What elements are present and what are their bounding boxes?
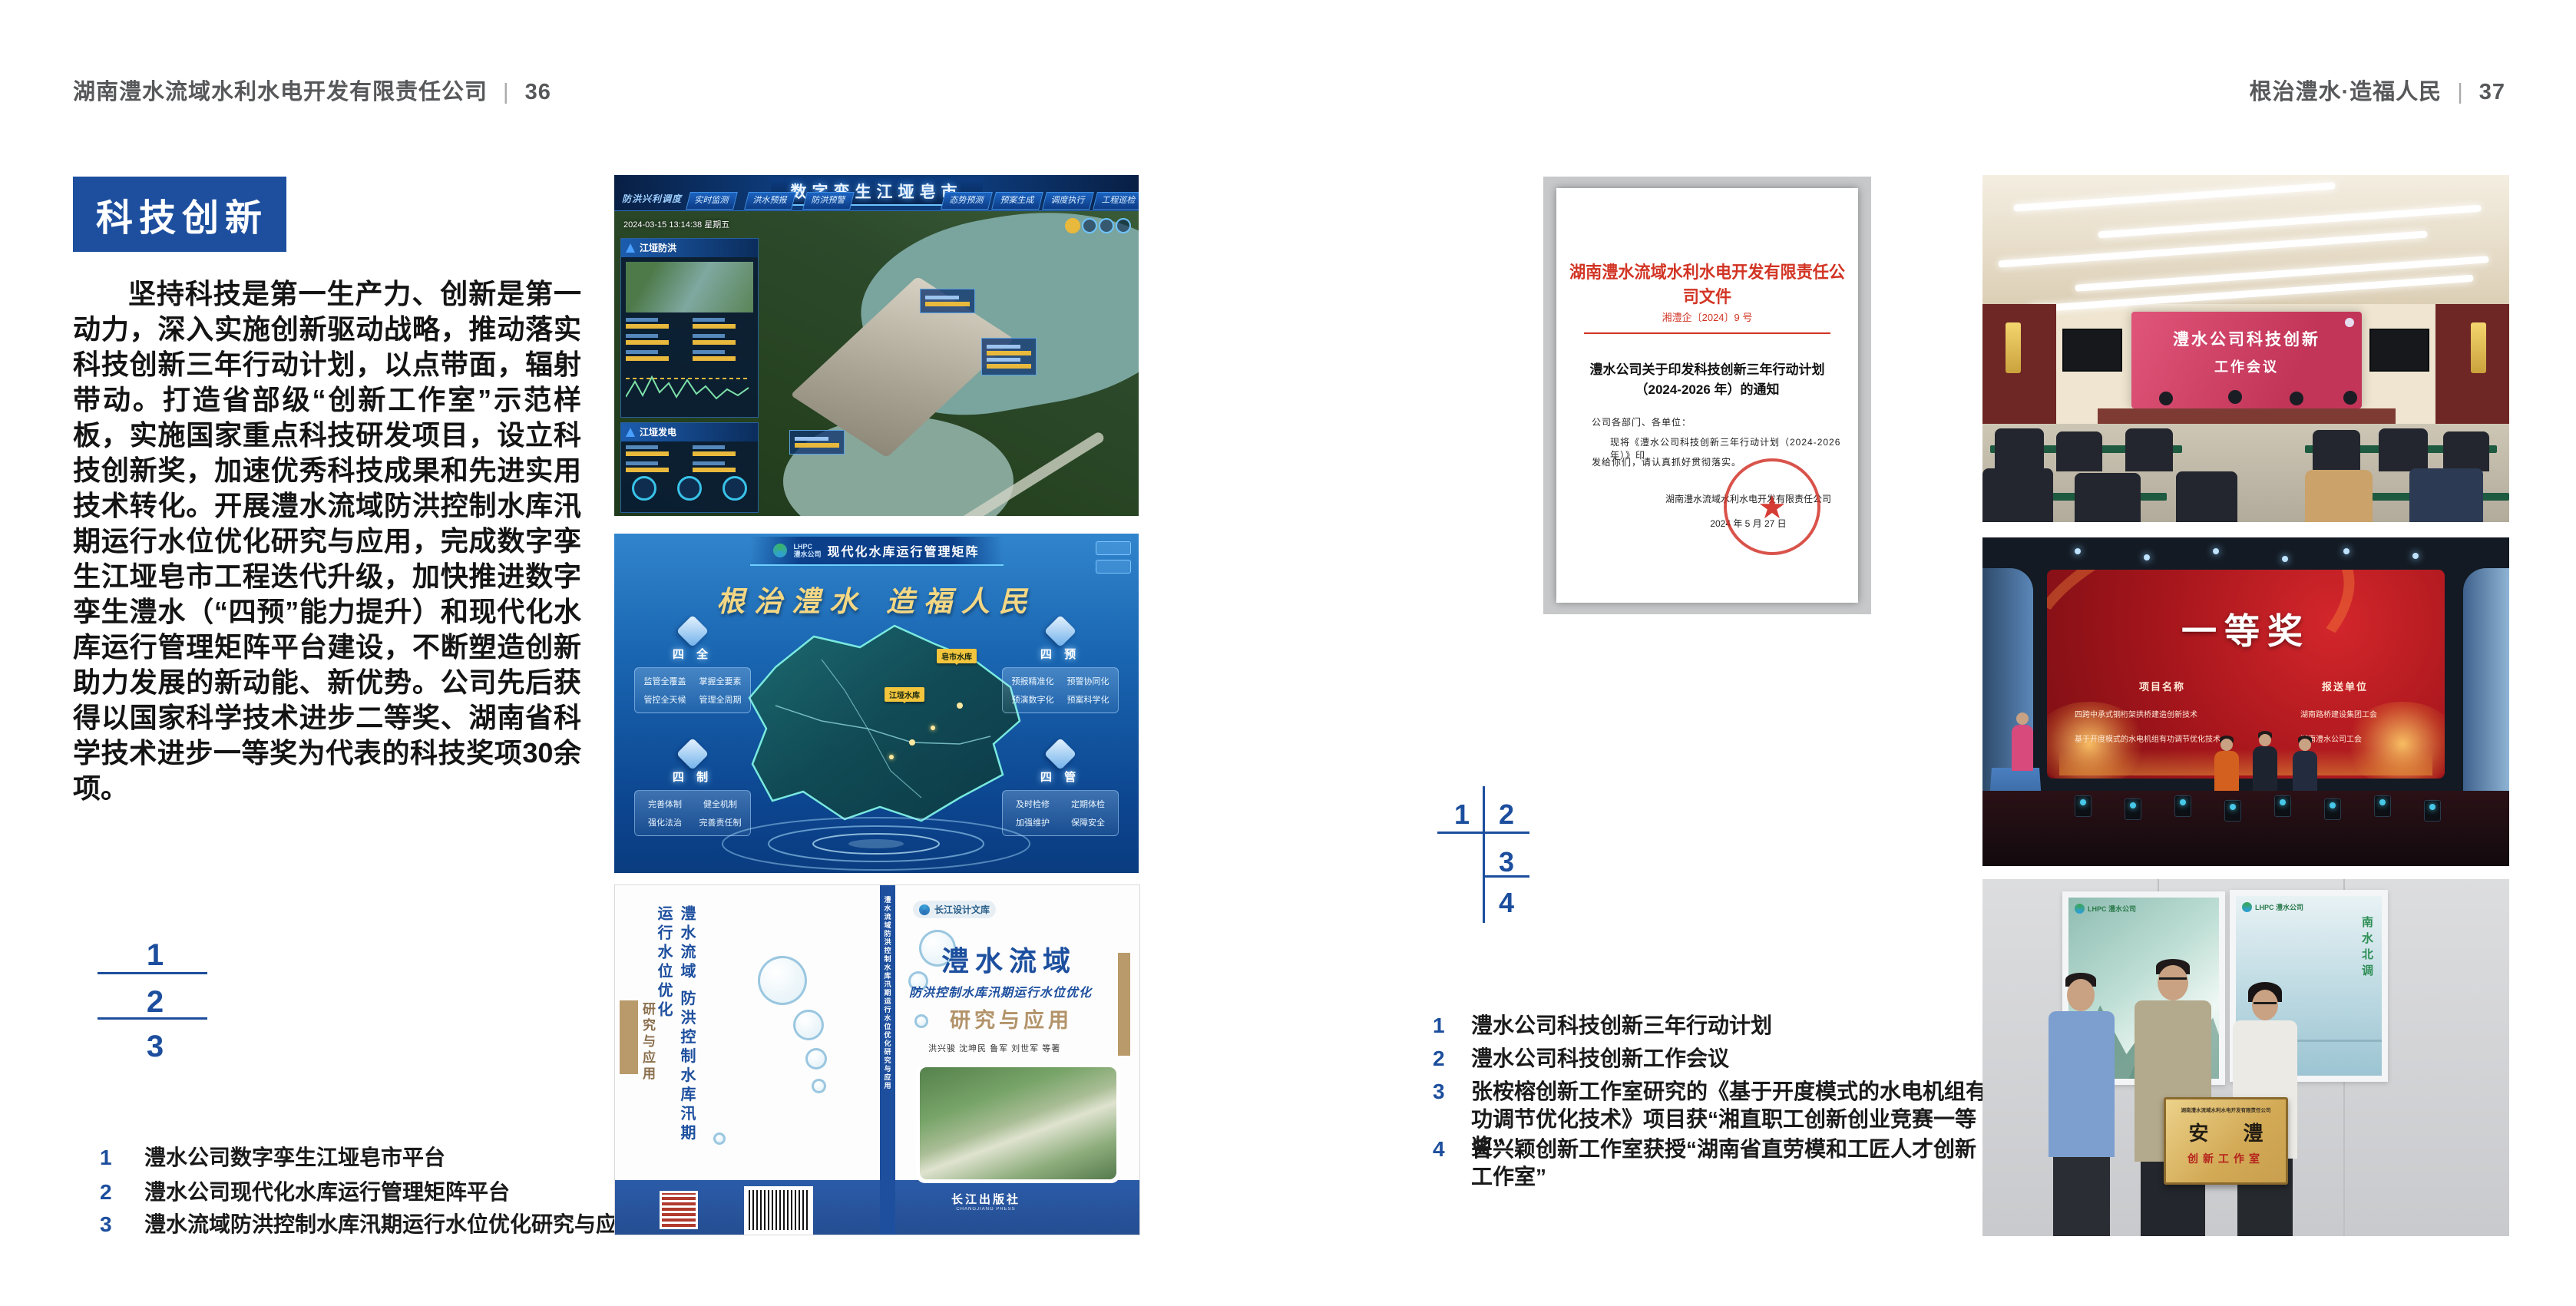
power-panel-title: 江垭发电 bbox=[621, 423, 758, 441]
water-level-chart bbox=[626, 366, 753, 406]
header-divider: | bbox=[2457, 80, 2464, 104]
monitor-icon bbox=[676, 615, 709, 647]
figure-index-4: 4 bbox=[1491, 887, 1522, 919]
dam-photo bbox=[916, 1063, 1120, 1183]
attendee bbox=[2379, 428, 2428, 471]
publisher-logo: 长江出版社 CHANGJIANG PRESS bbox=[951, 1191, 1020, 1212]
fullscreen-icon bbox=[1082, 218, 1097, 233]
stage-light-icon bbox=[2075, 795, 2092, 817]
innovation-studio-plaque: 湖南澧水流域水利水电开发有限责任公司 安 澧 创新工作室 bbox=[2164, 1097, 2288, 1185]
barcode bbox=[744, 1186, 813, 1235]
screen-logo-icon bbox=[2345, 318, 2354, 327]
book-subtitle-2: 研究与应用 bbox=[950, 1003, 1073, 1033]
attendee bbox=[2176, 471, 2237, 522]
matrix-header: LHPC澧水公司 现代化水库运行管理矩阵 bbox=[750, 537, 1004, 566]
flood-control-panel: 江垭防洪 bbox=[620, 238, 759, 418]
figure-index-3: 3 bbox=[137, 1030, 174, 1064]
tab-situation-forecast: 态势预测 bbox=[941, 192, 993, 210]
caption-number: 3 bbox=[100, 1212, 144, 1237]
tab-dispatch-execute: 调度执行 bbox=[1042, 192, 1094, 210]
glasses-icon bbox=[2159, 977, 2187, 986]
award-row-project: 基于开度模式的水电机组有功调节优化技术 bbox=[2075, 732, 2221, 744]
tab-realtime-monitor: 实时监测 bbox=[686, 192, 738, 210]
document-red-rule bbox=[1584, 332, 1830, 334]
caption-number: 1 bbox=[100, 1146, 144, 1170]
page-header-right: 根治澧水·造福人民|37 bbox=[2250, 74, 2505, 106]
body-paragraph: 坚持科技是第一生产力、创新是第一动力，深入实施创新驱动战略，推动落实科技创新三年… bbox=[73, 276, 581, 806]
capacity-tooltip bbox=[981, 338, 1037, 375]
column-project: 项目名称 bbox=[2139, 679, 2185, 693]
book-title: 澧水流域 bbox=[941, 939, 1076, 979]
series-badge: 长江设计文库 bbox=[913, 901, 996, 918]
forecast-icon bbox=[1044, 615, 1076, 647]
radar-rings bbox=[707, 810, 1045, 873]
caption-text: 澧水公司数字孪生江垭皂市平台 bbox=[144, 1146, 445, 1169]
attendee bbox=[2075, 473, 2141, 522]
map-marker-dot bbox=[931, 726, 935, 730]
award-photo: 一等奖 项目名称 报送单位 四跨中承式钢桁架拱桥建造创新技术 湖南路桥建设集团工… bbox=[1982, 537, 2509, 866]
lhpc-logo-icon bbox=[773, 544, 787, 557]
plaque-title: 安 澧 bbox=[2166, 1118, 2286, 1146]
qr-code bbox=[660, 1191, 698, 1229]
lhpc-logo-icon: LHPC 澧水公司 bbox=[2075, 904, 2136, 914]
prize-title: 一等奖 bbox=[2047, 603, 2445, 654]
caption-text: 澧水公司现代化水库运行管理矩阵平台 bbox=[144, 1180, 510, 1204]
back-cover-title: 澧水流域 防洪控制水库汛期运行水位优化 bbox=[652, 905, 698, 1159]
tab-flood-warning: 防洪预警 bbox=[802, 192, 855, 210]
figure-index-1: 1 bbox=[137, 938, 174, 973]
plaque-subtitle: 创新工作室 bbox=[2166, 1151, 2286, 1166]
wall-tv bbox=[2062, 329, 2122, 372]
group-siyu: 四 预 预报精准化预警协同化 预演数字化预案科学化 bbox=[1002, 620, 1119, 713]
figure-index-divider bbox=[1437, 832, 1529, 834]
water-droplet-icon bbox=[805, 1048, 827, 1070]
stage-light-icon bbox=[2424, 800, 2441, 822]
meeting-photo: 澧水公司科技创新 工作会议 bbox=[1982, 175, 2509, 522]
front-tan-bar bbox=[1118, 953, 1130, 1056]
map-marker-dot bbox=[889, 755, 894, 759]
tab-flood-forecast: 洪水预报 bbox=[744, 192, 796, 210]
matrix-toolbar-button bbox=[1096, 560, 1131, 574]
dashboard-screenshot: 数字孪生江垭皂市 防洪兴利调度 实时监测 洪水预报 防洪预警 态势预测 预案生成… bbox=[614, 175, 1139, 516]
figure-caption: 3澧水流域防洪控制水库汛期运行水位优化研究与应用 bbox=[100, 1208, 639, 1238]
marker-zaoshi: 皂市水库 bbox=[937, 649, 977, 663]
changjiang-design-logo-icon bbox=[919, 904, 930, 915]
glasses-icon bbox=[2254, 1002, 2277, 1010]
attendee bbox=[2443, 431, 2489, 471]
matrix-logo-text: LHPC澧水公司 bbox=[793, 543, 821, 558]
group-siquan: 四 全 监管全覆盖掌握全要素 管控全天候管理全周期 bbox=[634, 620, 751, 713]
column-unit: 报送单位 bbox=[2322, 679, 2368, 693]
attendee bbox=[2056, 431, 2102, 471]
wall-tv bbox=[2369, 329, 2429, 372]
figure-index-2: 2 bbox=[1491, 798, 1522, 831]
alert-icon bbox=[1116, 218, 1131, 233]
page-number-right: 37 bbox=[2479, 80, 2505, 104]
document-page: 湖南澧水流域水利水电开发有限责任公司文件 湘澧企〔2024〕9 号 澧水公司关于… bbox=[1556, 188, 1858, 603]
seal-star-icon: ★ bbox=[1758, 488, 1787, 526]
water-droplet-icon bbox=[758, 956, 807, 1005]
maintenance-icon bbox=[1044, 738, 1076, 770]
figure-caption: 2澧水公司科技创新工作会议 bbox=[1433, 1045, 1993, 1073]
document-title-line2: （2024-2026 年）的通知 bbox=[1556, 379, 1858, 398]
document-body-line2: 发给你们，请认真抓好贯彻落实。 bbox=[1592, 455, 1741, 468]
figure-index-divider bbox=[98, 1017, 207, 1020]
section-title: 科技创新 bbox=[73, 177, 286, 252]
wall-lamp-icon bbox=[2471, 322, 2486, 373]
attendee bbox=[2125, 428, 2173, 471]
award-row-unit: 湖南路桥建设集团工会 bbox=[2300, 708, 2377, 719]
back-tan-block bbox=[620, 1000, 638, 1074]
poster-calligraphy: 南水北调 bbox=[2359, 916, 2376, 980]
dam-thumbnail bbox=[626, 262, 753, 312]
wall-lamp-icon bbox=[2006, 322, 2021, 373]
book-authors: 洪兴骏 沈坤民 鲁军 刘世军 等著 bbox=[928, 1042, 1060, 1054]
user-icon bbox=[1065, 218, 1080, 233]
upstream-level-tooltip bbox=[920, 289, 975, 313]
turbine-gauges bbox=[621, 476, 758, 501]
screen-title-line2: 工作会议 bbox=[2131, 356, 2362, 376]
caption-number: 2 bbox=[100, 1180, 144, 1205]
plaque-org-line: 湖南澧水流域水利水电开发有限责任公司 bbox=[2166, 1106, 2286, 1113]
figure-index-3: 3 bbox=[1491, 846, 1522, 878]
document-title-line1: 澧水公司关于印发科技创新三年行动计划 bbox=[1556, 359, 1858, 378]
plaque-photo: LHPC 澧水公司 LHPC 澧水公司 南水北调 bbox=[1982, 879, 2509, 1236]
head-table bbox=[2098, 408, 2396, 424]
flood-stats bbox=[626, 317, 753, 362]
institution-icon bbox=[676, 738, 709, 770]
slogan: 根治澧水·造福人民 bbox=[2250, 80, 2442, 104]
figure-caption: 2澧水公司现代化水库运行管理矩阵平台 bbox=[100, 1175, 510, 1206]
figure-caption: 1澧水公司数字孪生江垭皂市平台 bbox=[100, 1141, 445, 1172]
water-droplet-icon bbox=[914, 1014, 928, 1028]
attendee bbox=[2409, 468, 2483, 522]
figure-index-2: 2 bbox=[137, 985, 174, 1020]
stage-light-icon bbox=[2174, 795, 2191, 817]
official-document: 湖南澧水流域水利水电开发有限责任公司文件 湘澧企〔2024〕9 号 澧水公司关于… bbox=[1543, 177, 1871, 614]
flood-panel-title: 江垭防洪 bbox=[621, 239, 758, 257]
settings-icon bbox=[1099, 218, 1114, 233]
downstream-level-tooltip bbox=[789, 430, 845, 455]
page-header-left: 湖南澧水流域水利水电开发有限责任公司|36 bbox=[73, 74, 551, 106]
led-screen: 一等奖 项目名称 报送单位 四跨中承式钢桁架拱桥建造创新技术 湖南路桥建设集团工… bbox=[2047, 570, 2445, 779]
document-header: 湖南澧水流域水利水电开发有限责任公司文件 bbox=[1562, 259, 1852, 308]
attendee bbox=[1982, 468, 2053, 522]
book-subtitle: 防洪控制水库汛期运行水位优化 bbox=[909, 982, 1092, 1000]
award-row-project: 四跨中承式钢桁架拱桥建造创新技术 bbox=[2075, 708, 2197, 719]
attendee bbox=[2305, 470, 2373, 522]
power-stats bbox=[626, 445, 753, 473]
stage-light-icon bbox=[2274, 795, 2291, 817]
caption-text: 澧水流域防洪控制水库汛期运行水位优化研究与应用 bbox=[144, 1212, 639, 1236]
tab-project-inspect: 工程巡检 bbox=[1093, 192, 1139, 210]
header-divider: | bbox=[503, 80, 510, 104]
document-number: 湘澧企〔2024〕9 号 bbox=[1556, 309, 1858, 324]
back-cover-subtitle: 研究与应用 bbox=[638, 1002, 657, 1083]
dashboard-datetime: 2024-03-15 13:14:38 星期五 bbox=[623, 218, 729, 230]
figure-index-1: 1 bbox=[1447, 798, 1477, 831]
screen-title-line1: 澧水公司科技创新 bbox=[2131, 327, 2362, 350]
tab-plan-generate: 预案生成 bbox=[991, 192, 1043, 210]
stage-light-icon bbox=[2224, 800, 2241, 822]
water-droplet-icon bbox=[713, 1132, 726, 1145]
figure-caption: 4曾兴颖创新工作室获授“湖南省直劳模和工匠人才创新工作室” bbox=[1433, 1136, 1993, 1191]
lhpc-logo-icon: LHPC 澧水公司 bbox=[2242, 902, 2303, 912]
stage-light-icon bbox=[2324, 798, 2341, 820]
marker-jiangya: 江垭水库 bbox=[885, 687, 924, 702]
water-droplet-icon bbox=[812, 1079, 826, 1093]
page-number-left: 36 bbox=[525, 80, 551, 104]
company-seal: ★ bbox=[1724, 458, 1820, 555]
stage-light-icon bbox=[2125, 798, 2141, 820]
book-cover: 澧水流域 防洪控制水库汛期运行水位优化 研究与应用 澧水流域防洪控制水库汛期运行… bbox=[614, 884, 1140, 1235]
stage-light-icon bbox=[2374, 795, 2391, 817]
basin-map bbox=[729, 613, 1029, 828]
matrix-screenshot: LHPC澧水公司 现代化水库运行管理矩阵 根治澧水 造福人民 江垭水库 皂市水库 bbox=[614, 534, 1139, 873]
attendee bbox=[1995, 428, 2044, 471]
company-name: 湖南澧水流域水利水电开发有限责任公司 bbox=[73, 80, 488, 104]
document-salutation: 公司各部门、各单位： bbox=[1592, 415, 1691, 428]
figure-index-divider bbox=[1483, 875, 1529, 878]
figure-caption: 1澧水公司科技创新三年行动计划 bbox=[1433, 1012, 1993, 1040]
figure-index-divider bbox=[98, 972, 207, 974]
dashboard-menu-label: 防洪兴利调度 bbox=[622, 192, 682, 205]
book-spine: 澧水流域防洪控制水库汛期运行水位优化研究与应用 bbox=[880, 885, 895, 1235]
water-droplet-icon bbox=[793, 1010, 824, 1040]
magazine-spread: 湖南澧水流域水利水电开发有限责任公司|36 根治澧水·造福人民|37 科技创新 … bbox=[0, 0, 2576, 1306]
power-panel: 江垭发电 bbox=[620, 422, 759, 513]
matrix-title: 现代化水库运行管理矩阵 bbox=[828, 541, 980, 560]
figure-index-vline bbox=[1483, 786, 1485, 923]
attendee bbox=[2313, 430, 2360, 471]
matrix-toolbar-button bbox=[1096, 541, 1131, 555]
